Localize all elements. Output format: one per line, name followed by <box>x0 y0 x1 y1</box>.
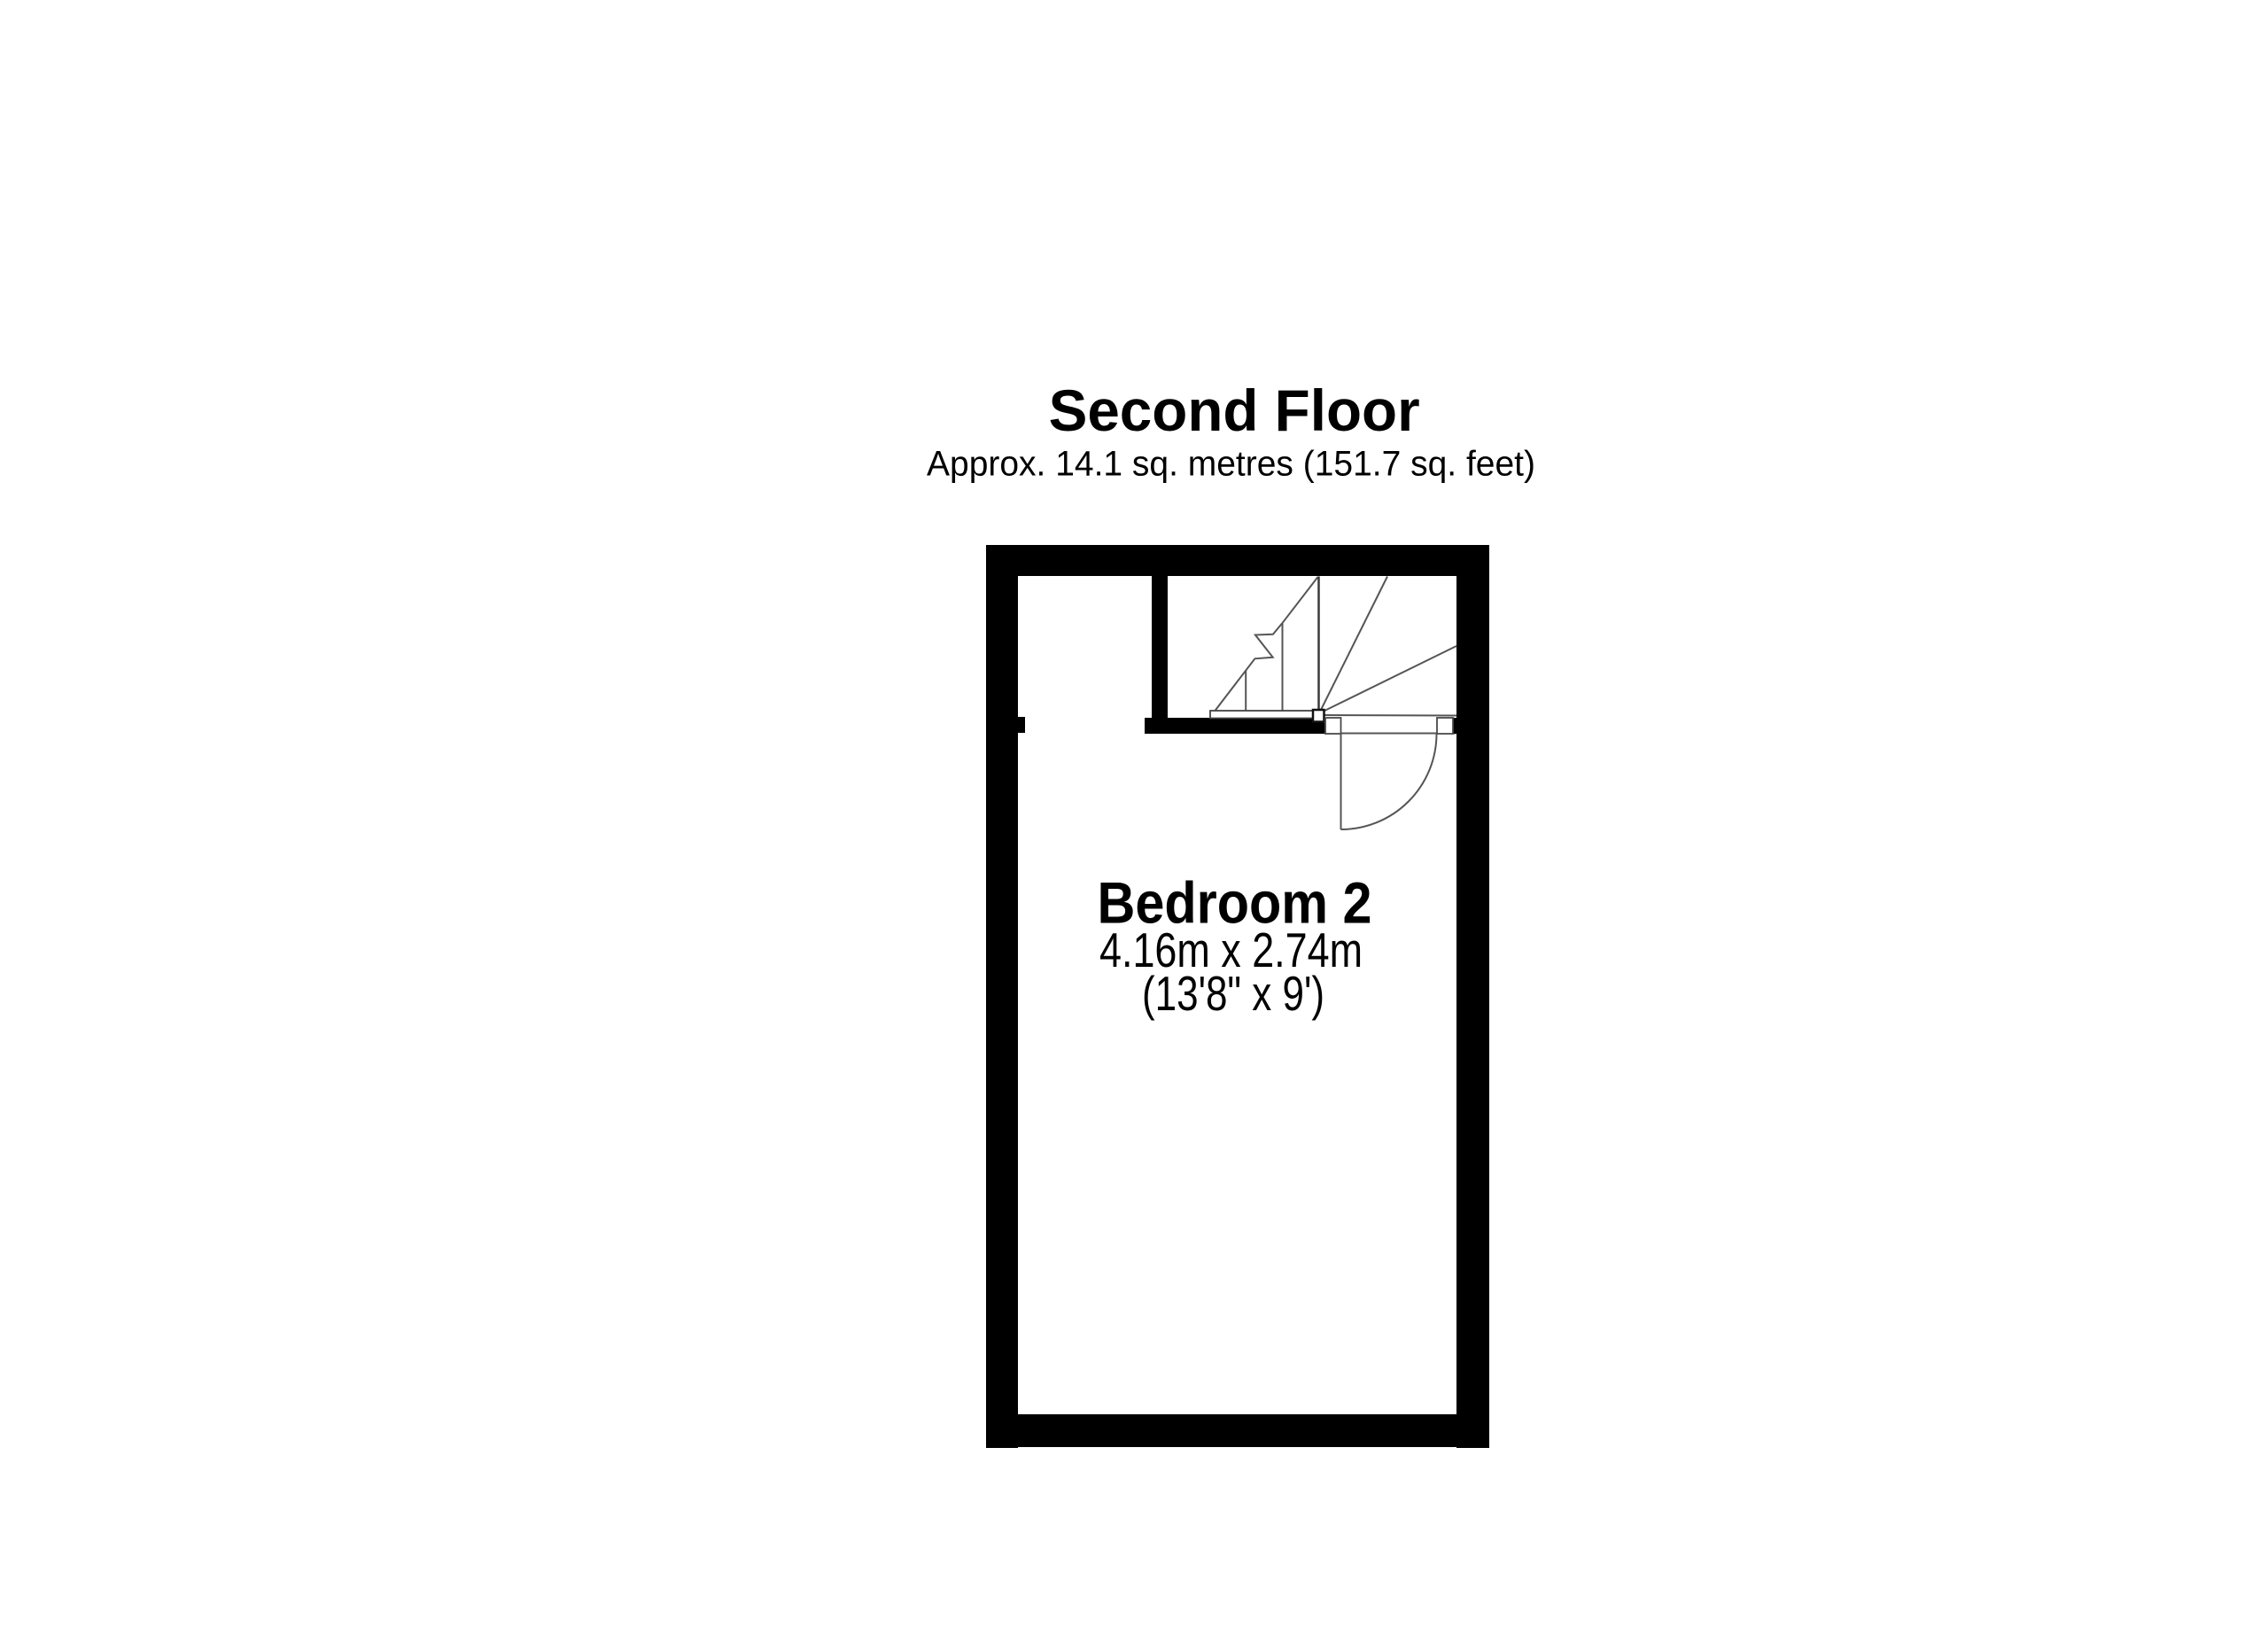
svg-text:Second Floor: Second Floor <box>1049 377 1420 443</box>
svg-text:Approx. 14.1 sq. metres (151.7: Approx. 14.1 sq. metres (151.7 sq. feet) <box>927 445 1535 484</box>
svg-text:(13'8" x 9'): (13'8" x 9') <box>1142 966 1324 1021</box>
